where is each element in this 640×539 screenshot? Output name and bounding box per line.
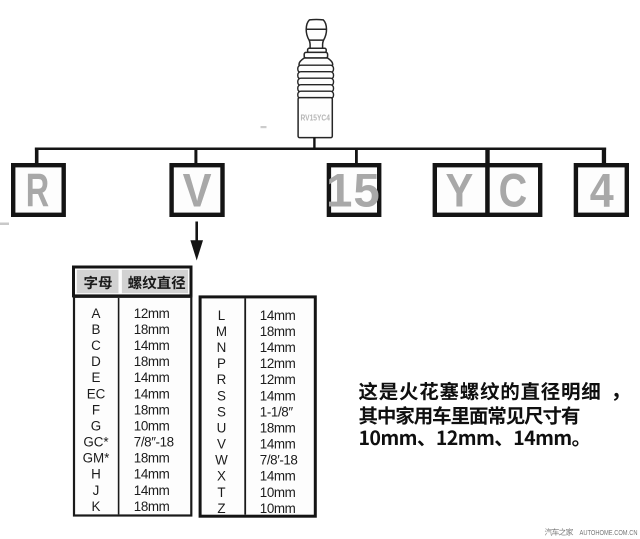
svg-text:N: N [217,340,227,355]
svg-text:X: X [217,469,226,484]
svg-text:AUTOHOME.COM.CN: AUTOHOME.COM.CN [580,528,638,537]
svg-text:Y: Y [446,165,474,218]
svg-text:14mm: 14mm [260,388,296,403]
svg-text:Z: Z [217,501,225,516]
svg-text:10mm: 10mm [260,501,296,516]
svg-text:T: T [217,485,225,500]
svg-text:M: M [216,324,227,339]
svg-text:14mm: 14mm [260,469,296,484]
svg-text:18mm: 18mm [134,354,170,369]
svg-text:L: L [218,308,225,323]
svg-text:14mm: 14mm [260,437,296,452]
svg-text:18mm: 18mm [134,451,170,466]
svg-text:14mm: 14mm [134,467,170,482]
svg-text:14mm: 14mm [134,386,170,401]
svg-text:7/8′-18: 7/8′-18 [260,453,298,468]
svg-text:G: G [91,419,101,434]
svg-text:P: P [217,356,226,371]
svg-text:14mm: 14mm [260,340,296,355]
svg-text:U: U [217,421,227,436]
svg-text:14mm: 14mm [260,308,296,323]
svg-text:18mm: 18mm [260,421,296,436]
svg-text:1-1/8″: 1-1/8″ [260,404,294,419]
svg-text:B: B [92,322,101,337]
svg-text:R: R [26,165,49,218]
svg-text:10mm: 10mm [260,485,296,500]
svg-text:S: S [217,404,226,419]
svg-text:C: C [91,338,101,353]
svg-text:EC: EC [87,386,106,401]
svg-text:GC*: GC* [83,435,108,450]
svg-text:10mm: 10mm [134,419,170,434]
svg-text:V: V [183,165,212,218]
svg-text:H: H [91,467,101,482]
svg-text:18mm: 18mm [134,322,170,337]
svg-text:12mm: 12mm [134,306,170,321]
svg-text:14mm: 14mm [134,483,170,498]
svg-text:C: C [499,165,528,218]
svg-text:18mm: 18mm [260,324,296,339]
svg-text:14mm: 14mm [134,338,170,353]
svg-text:15: 15 [326,165,381,218]
svg-text:7/8″-18: 7/8″-18 [134,435,174,450]
svg-text:R: R [217,372,227,387]
svg-text:D: D [91,354,101,369]
svg-text:V: V [217,437,226,452]
svg-text:J: J [93,483,100,498]
svg-text:4: 4 [590,165,615,218]
svg-text:RV15YC4: RV15YC4 [300,113,330,123]
svg-text:14mm: 14mm [134,370,170,385]
svg-text:F: F [92,402,100,417]
svg-text:W: W [215,453,228,468]
svg-text:A: A [92,306,101,321]
svg-text:18mm: 18mm [134,499,170,514]
svg-text:S: S [217,388,226,403]
svg-text:12mm: 12mm [260,372,296,387]
svg-text:E: E [92,370,101,385]
svg-text:18mm: 18mm [134,402,170,417]
svg-text:GM*: GM* [83,451,110,466]
svg-text:K: K [92,499,101,514]
svg-text:12mm: 12mm [260,356,296,371]
